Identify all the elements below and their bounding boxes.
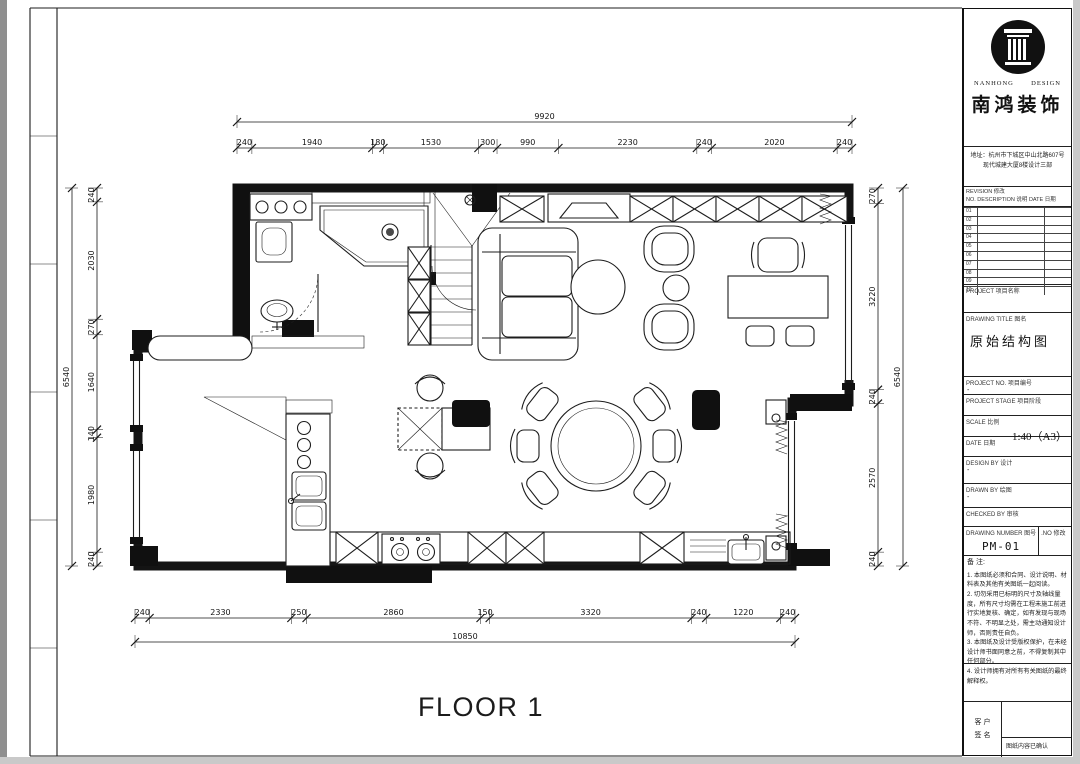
field-checked-by: CHECKED BY 审核: [964, 508, 1071, 527]
svg-text:250: 250: [291, 608, 306, 617]
laptop: [452, 400, 490, 427]
bathroom: [250, 194, 428, 332]
revision-row: 04: [964, 233, 1071, 242]
confirm-text: 图纸内容已确认: [1002, 738, 1071, 757]
sofa: [478, 228, 578, 360]
dining-chair: [630, 468, 673, 512]
armchair: [644, 304, 694, 350]
notes: 备 注: 1. 本图纸必须和合同、设计说明、材料表及其他有关图纸一起阅读。 2.…: [964, 556, 1071, 664]
revision-row: 06: [964, 251, 1071, 260]
field-drawing-title: DRAWING TITLE 图名 原始结构图: [964, 313, 1071, 377]
floor-title: FLOOR 1: [0, 692, 962, 723]
field-drawn-by: DRAWN BY 绘图 -: [964, 484, 1071, 508]
drawing-title-value: 原始结构图: [964, 323, 1071, 350]
field-design-by: DESIGN BY 设计 -: [964, 457, 1071, 484]
wall-column: [233, 184, 250, 348]
svg-text:240: 240: [691, 608, 706, 617]
hatched-wall: [312, 192, 430, 203]
office-chair: [752, 238, 805, 272]
armchair: [644, 226, 694, 272]
dining-chair: [653, 429, 682, 463]
revision-row: 05: [964, 242, 1071, 251]
revision-row: 08: [964, 269, 1071, 278]
field-project: PROJECT 项目名称: [964, 285, 1071, 313]
desk: [728, 238, 828, 346]
svg-text:1940: 1940: [302, 138, 322, 147]
stove: [382, 534, 440, 564]
svg-text:3220: 3220: [868, 286, 877, 306]
wall-column: [788, 549, 830, 566]
wall-column: [130, 546, 158, 566]
field-drawing-number: DRAWING NUMBER 图号 PM-01 .NO 修改: [964, 527, 1071, 556]
stool: [786, 326, 814, 346]
revision-row: 03: [964, 225, 1071, 234]
washing-machine: [256, 222, 292, 262]
hatched-wall: [286, 400, 332, 413]
entry-ramp: [204, 397, 286, 440]
svg-text:990: 990: [520, 138, 535, 147]
revision-row: 01: [964, 207, 1071, 216]
tea-table: [398, 375, 490, 479]
drawing-number-value: PM-01: [964, 537, 1038, 553]
rug-black: [692, 390, 720, 430]
svg-text:2860: 2860: [383, 608, 403, 617]
note-item: 1. 本图纸必须和合同、设计说明、材料表及其他有关图纸一起阅读。: [967, 571, 1068, 590]
svg-text:270: 270: [87, 319, 96, 334]
field-scale: SCALE 比例 1:40（A3）: [964, 416, 1071, 437]
dining-chair: [511, 429, 540, 463]
floor-plan-canvas: 2401940180153030099022302402020240992024…: [0, 0, 962, 764]
dining-area: [511, 380, 682, 512]
svg-text:6540: 6540: [893, 367, 902, 387]
svg-text:6540: 6540: [62, 367, 71, 387]
company-address: 地址：杭州市下城区中山北路607号 现代城建大厦8楼设计三部: [964, 147, 1071, 187]
company-logo-area: NANHONG DESIGN 南鸿装饰: [964, 9, 1071, 147]
field-date: DATE 日期: [964, 437, 1071, 457]
svg-text:1640: 1640: [87, 372, 96, 392]
field-project-no: PROJECT NO. 项目编号 -: [964, 377, 1071, 395]
column-logo-icon: [990, 19, 1046, 75]
svg-text:1530: 1530: [421, 138, 441, 147]
drawing-sheet: 2401940180153030099022302402020240992024…: [0, 0, 1080, 764]
round-chair: [415, 375, 445, 401]
svg-text:2230: 2230: [617, 138, 637, 147]
svg-text:1980: 1980: [87, 485, 96, 505]
revision-row: 02: [964, 216, 1071, 225]
svg-text:240: 240: [780, 608, 795, 617]
svg-text:9920: 9920: [534, 112, 554, 121]
tv-console: [548, 194, 630, 222]
wall-band: [286, 566, 432, 583]
hatched-wall: [252, 336, 364, 348]
sign-off-box: 客 户 签 名 图纸内容已确认: [964, 702, 1071, 757]
svg-text:2330: 2330: [210, 608, 230, 617]
svg-text:240: 240: [868, 389, 877, 404]
dining-chair: [630, 380, 673, 424]
svg-text:2030: 2030: [87, 250, 96, 270]
page-edge-right: [1073, 0, 1080, 764]
svg-text:240: 240: [837, 138, 852, 147]
sheet-frame: [30, 8, 962, 756]
svg-text:1220: 1220: [733, 608, 753, 617]
wall-column: [790, 394, 852, 411]
round-chair: [415, 453, 445, 479]
svg-text:2020: 2020: [764, 138, 784, 147]
svg-text:240: 240: [87, 551, 96, 566]
svg-text:2570: 2570: [868, 468, 877, 488]
svg-text:3320: 3320: [580, 608, 600, 617]
svg-text:240: 240: [135, 608, 150, 617]
svg-text:240: 240: [697, 138, 712, 147]
svg-text:270: 270: [868, 188, 877, 203]
svg-text:140: 140: [87, 426, 96, 441]
note-item: 2. 切勿采用已标明的尺寸及轴线量度，所有尺寸均需在工程未施工前进行实地复核、确…: [967, 590, 1068, 638]
coffee-table: [571, 260, 625, 314]
wall-fixture: [766, 536, 786, 560]
svg-text:240: 240: [87, 187, 96, 202]
svg-text:240: 240: [237, 138, 252, 147]
revision-header: REVISION 修改 NO. DESCRIPTION 说明 DATE 日期: [964, 187, 1071, 207]
title-block: NANHONG DESIGN 南鸿装饰 地址：杭州市下城区中山北路607号 现代…: [962, 8, 1072, 756]
company-name: 南鸿装饰: [964, 90, 1071, 117]
wall-column: [472, 184, 497, 212]
svg-text:150: 150: [477, 608, 492, 617]
dining-chair: [518, 468, 561, 512]
signature-space: [1002, 702, 1071, 738]
blank-box: [964, 664, 1071, 702]
revision-table: 01020304050607080910: [964, 207, 1071, 285]
client-sign-label: 客 户 签 名: [964, 702, 1002, 757]
entry-bench: [148, 336, 252, 360]
margin-strip: [30, 136, 57, 648]
wall-fixture: [766, 400, 786, 424]
svg-text:240: 240: [868, 551, 877, 566]
stool: [746, 326, 774, 346]
side-table: [663, 275, 689, 301]
threshold: [282, 320, 314, 337]
svg-text:10850: 10850: [452, 632, 477, 641]
page-edge-bottom: [0, 757, 1080, 764]
dining-chair: [518, 380, 561, 424]
note-item: 3. 本图纸及设计受版权保护，在未经设计师书面同意之前，不得复制其中任何部分。: [967, 638, 1068, 667]
svg-text:300: 300: [480, 138, 495, 147]
field-project-stage: PROJECT STAGE 项目阶段: [964, 395, 1071, 416]
svg-text:180: 180: [370, 138, 385, 147]
revision-row: 07: [964, 260, 1071, 269]
laundry-counter: [250, 194, 312, 220]
dining-table: [551, 401, 641, 491]
latin-name: NANHONG DESIGN: [964, 80, 1071, 87]
kitchen-sink: [690, 535, 764, 565]
